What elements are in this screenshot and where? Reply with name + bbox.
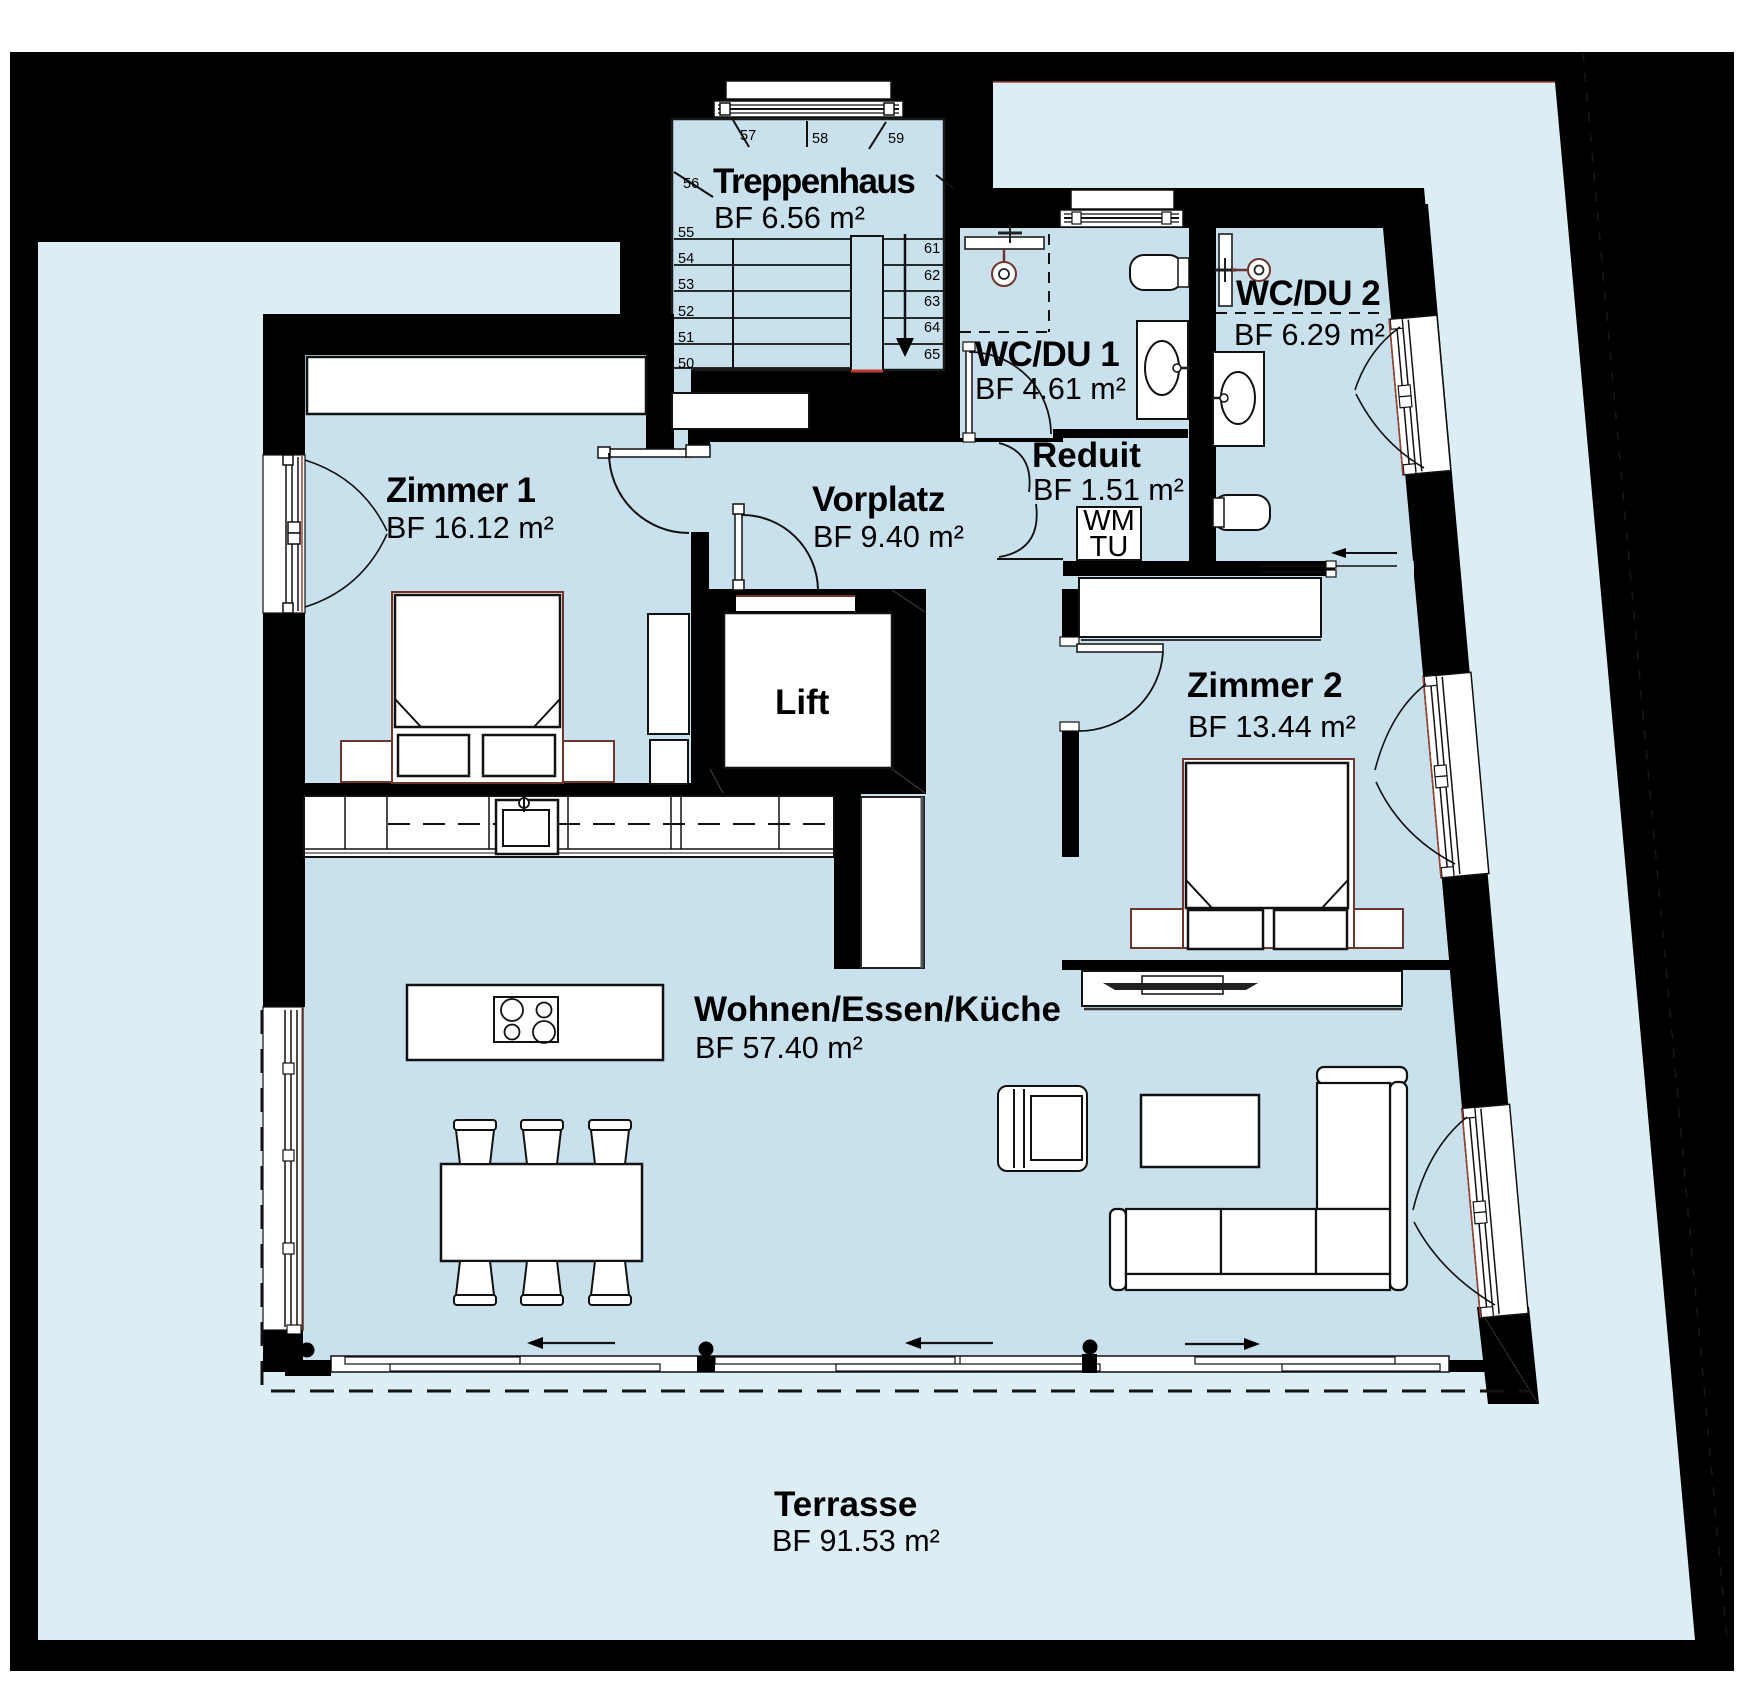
svg-text:BF 6.29 m²: BF 6.29 m² xyxy=(1234,318,1385,352)
svg-text:BF 1.51 m²: BF 1.51 m² xyxy=(1033,473,1184,507)
svg-text:BF 6.56 m²: BF 6.56 m² xyxy=(714,201,865,235)
svg-text:Vorplatz: Vorplatz xyxy=(812,480,945,519)
svg-text:51: 51 xyxy=(678,330,694,346)
svg-text:Lift: Lift xyxy=(775,683,830,722)
svg-text:57: 57 xyxy=(740,128,756,144)
svg-text:54: 54 xyxy=(678,251,694,267)
svg-text:Wohnen/Essen/Küche: Wohnen/Essen/Küche xyxy=(694,990,1061,1029)
svg-text:0: 0 xyxy=(946,187,954,203)
svg-text:65: 65 xyxy=(924,347,940,363)
svg-text:56: 56 xyxy=(683,176,699,192)
svg-text:61: 61 xyxy=(924,241,940,257)
svg-text:WC/DU 1: WC/DU 1 xyxy=(975,335,1119,374)
svg-text:BF 9.40 m²: BF 9.40 m² xyxy=(813,520,964,554)
svg-text:Zimmer 2: Zimmer 2 xyxy=(1187,666,1343,705)
svg-text:53: 53 xyxy=(678,277,694,293)
svg-text:TU: TU xyxy=(1090,531,1129,563)
svg-text:Reduit: Reduit xyxy=(1032,436,1141,475)
svg-text:50: 50 xyxy=(678,356,694,372)
svg-text:BF 4.61 m²: BF 4.61 m² xyxy=(975,372,1126,406)
svg-text:55: 55 xyxy=(678,225,694,241)
svg-text:62: 62 xyxy=(924,268,940,284)
svg-text:52: 52 xyxy=(678,304,694,320)
svg-text:Terrasse: Terrasse xyxy=(774,1485,917,1524)
svg-text:59: 59 xyxy=(888,131,904,147)
svg-text:63: 63 xyxy=(924,294,940,310)
svg-text:58: 58 xyxy=(812,131,828,147)
svg-text:Treppenhaus: Treppenhaus xyxy=(713,162,915,201)
svg-text:BF 13.44 m²: BF 13.44 m² xyxy=(1188,710,1356,744)
svg-text:BF 57.40 m²: BF 57.40 m² xyxy=(695,1031,863,1065)
svg-text:BF 91.53 m²: BF 91.53 m² xyxy=(772,1524,940,1558)
svg-text:Zimmer 1: Zimmer 1 xyxy=(386,471,536,510)
svg-text:BF 16.12 m²: BF 16.12 m² xyxy=(386,511,554,545)
svg-text:WC/DU 2: WC/DU 2 xyxy=(1236,274,1380,313)
svg-text:64: 64 xyxy=(924,320,940,336)
